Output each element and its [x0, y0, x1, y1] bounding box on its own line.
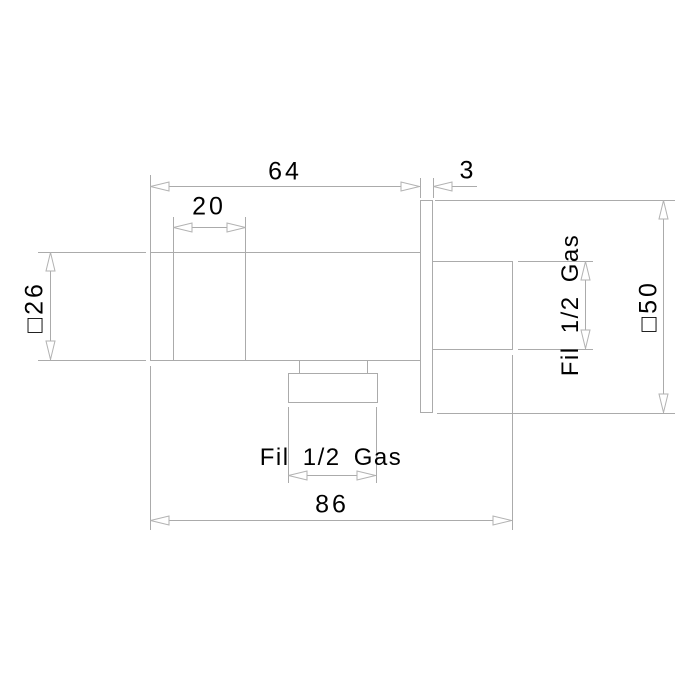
dim-outlet-thread-label: Fil 1/2 Gas: [260, 446, 403, 470]
dim-20-label: 20: [192, 195, 226, 220]
dim-50-ext-bottom: [437, 413, 675, 414]
dim-50-ext-top: [435, 200, 675, 201]
outlet-flange-outline: [288, 373, 378, 403]
outlet-neck-left-line: [299, 361, 300, 373]
dim-50-label: □50: [637, 280, 662, 332]
rear-thread-outline: [432, 261, 513, 350]
arrowhead-right-icon: [356, 470, 376, 481]
arrowhead-left-icon: [150, 181, 170, 192]
dim-26-ext-bottom: [38, 360, 146, 361]
technical-drawing-canvas: 64 3 20 □26 □50 Fil 1/2 Gas Fil 1/2 Gas …: [0, 0, 700, 700]
arrowhead-up-icon: [658, 200, 669, 220]
arrowhead-left-icon: [433, 181, 453, 192]
body-groove-line-front: [173, 217, 174, 361]
dim-rear-thread-label: Fil 1/2 Gas: [559, 234, 583, 377]
arrowhead-left-icon: [288, 470, 308, 481]
dim-64-label: 64: [268, 160, 302, 185]
arrowhead-right-icon: [226, 222, 246, 233]
outlet-neck-right-line: [367, 361, 368, 373]
dim-86-label: 86: [315, 493, 349, 518]
dim-3-ext-left: [420, 178, 421, 198]
arrowhead-down-icon: [658, 393, 669, 413]
arrowhead-down-icon: [45, 340, 56, 360]
arrowhead-left-icon: [173, 222, 193, 233]
dim-50-line: [663, 200, 664, 413]
arrowhead-right-icon: [492, 515, 512, 526]
valve-body-outline: [150, 252, 421, 361]
dim-86-ext-right: [512, 355, 513, 530]
body-groove-line-rear: [245, 217, 246, 361]
arrowhead-left-icon: [150, 515, 170, 526]
arrowhead-up-icon: [45, 252, 56, 272]
dim-26-label: □26: [23, 281, 48, 333]
dim-86-ext-left: [150, 366, 151, 530]
dim-64-line: [150, 186, 420, 187]
dim-3-label: 3: [460, 159, 477, 184]
arrowhead-right-icon: [400, 181, 420, 192]
dim-86-line: [150, 520, 512, 521]
